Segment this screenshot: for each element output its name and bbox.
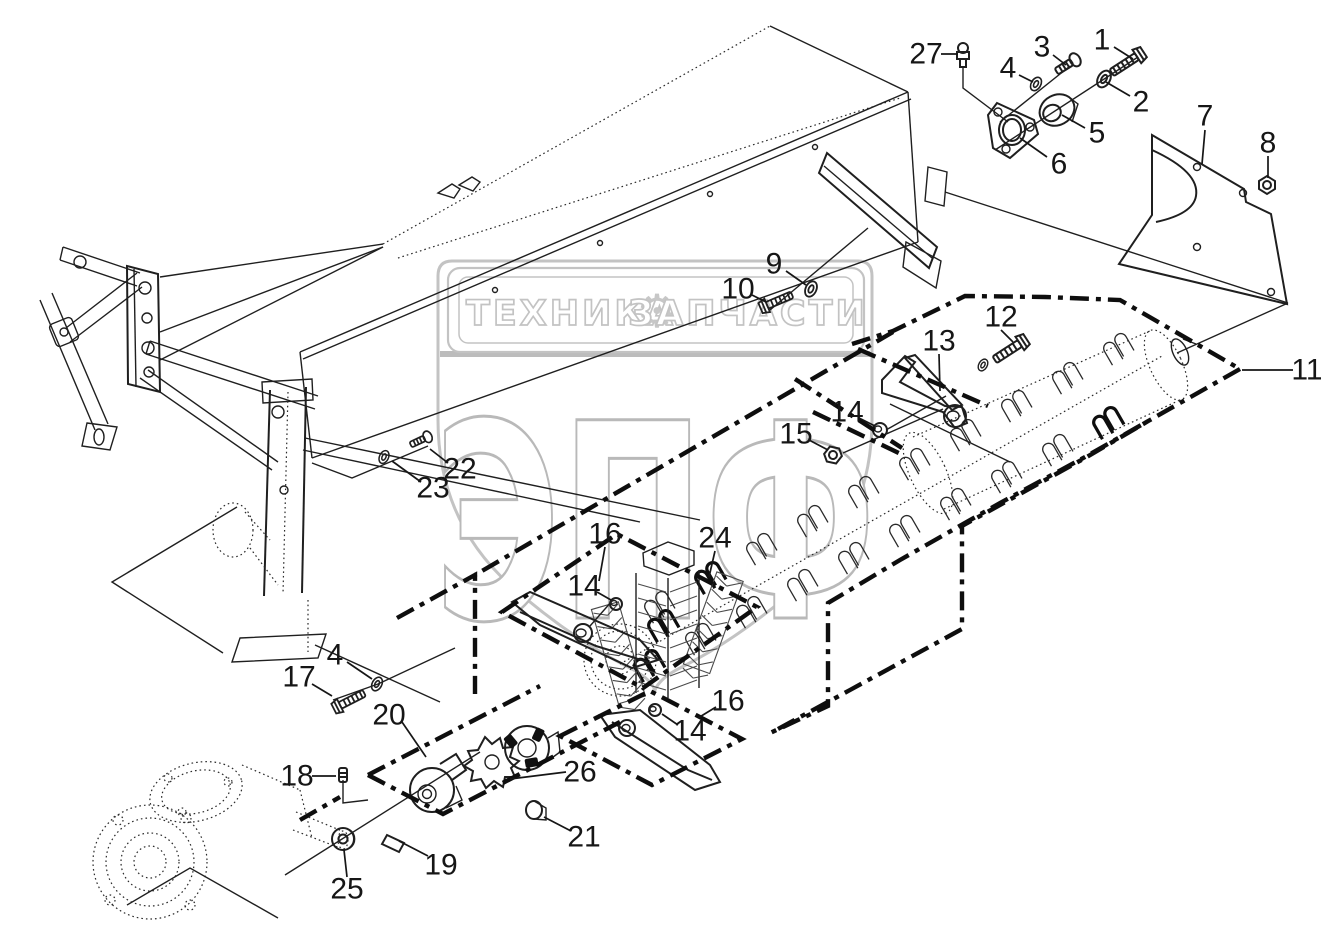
support-leg [213, 379, 326, 662]
tine-clip [1049, 360, 1084, 394]
part-1-label: 1 [1094, 24, 1111, 57]
end-tab [925, 167, 947, 206]
part-5-label: 5 [1089, 117, 1106, 150]
tine-clip [1039, 432, 1074, 466]
tine-clip [1100, 331, 1135, 365]
tine-clip [886, 513, 921, 547]
part-25-label: 25 [330, 873, 363, 906]
exploded-parts-diagram: ТЕХНИКА ⚙ ЗАПЧАСТИ ЭПФ [0, 0, 1321, 928]
top-bracket-left [438, 184, 460, 198]
part-14-top-label: 14 [830, 396, 863, 429]
part-17-label: 17 [282, 661, 315, 694]
part-19-label: 19 [424, 849, 457, 882]
part-27-label: 27 [909, 38, 942, 71]
top-bracket-right [459, 177, 480, 191]
part-21-label: 21 [567, 821, 600, 854]
part-26-label: 26 [563, 756, 596, 789]
set-screw-18 [339, 768, 347, 782]
part-10-label: 10 [721, 273, 754, 306]
part-24-label: 24 [698, 522, 731, 555]
part-7-label: 7 [1197, 100, 1214, 133]
part-6-leader [1020, 138, 1047, 157]
part-4-upper-leader [1019, 75, 1033, 82]
part-11-label: 11 [1291, 354, 1321, 387]
leg-foot [232, 634, 326, 662]
part-3-leader [1053, 55, 1066, 65]
washer-4-upper [1028, 75, 1044, 92]
part-12-label: 12 [984, 301, 1017, 334]
part-7-leader [1202, 130, 1205, 164]
part-16-bottom-label: 16 [711, 685, 744, 718]
pin-14-bottom [649, 704, 661, 716]
bolt-12 [990, 332, 1031, 366]
part-18-label: 18 [280, 760, 313, 793]
screw-22 [408, 430, 434, 450]
part-9-label: 9 [766, 248, 783, 281]
deflector-plate [819, 153, 937, 268]
part-1-leader [1114, 47, 1133, 59]
bolt-1 [1107, 45, 1148, 79]
part-8-label: 8 [1260, 127, 1277, 160]
part-9-leader [786, 271, 806, 285]
part-14-middle-label: 14 [567, 570, 600, 603]
part-16-middle-label: 16 [588, 518, 621, 551]
part-4-lower-label: 4 [327, 639, 344, 672]
drawbar-frame [40, 247, 440, 702]
part-2-leader [1106, 82, 1130, 96]
part-13-leader [939, 354, 940, 391]
tine-clip [896, 446, 931, 480]
screw-3 [1053, 51, 1083, 77]
coupling-flange [410, 768, 454, 812]
part-6-label: 6 [1051, 148, 1068, 181]
coupling-hub [503, 726, 560, 770]
part-3-label: 3 [1034, 31, 1051, 64]
tine-clip [937, 486, 972, 520]
watermark-logo: ТЕХНИКА ⚙ ЗАПЧАСТИ ЭПФ [434, 261, 876, 690]
tine-clip [988, 459, 1023, 493]
part-13-label: 13 [922, 325, 955, 358]
part-23-label: 23 [416, 472, 449, 505]
parts-diagram-page: ТЕХНИКА ⚙ ЗАПЧАСТИ ЭПФ [0, 0, 1321, 928]
nut-8 [1259, 176, 1275, 194]
key-19 [382, 835, 404, 852]
part-2-label: 2 [1133, 86, 1150, 119]
part-20-label: 20 [372, 699, 405, 732]
tine-clip [1090, 405, 1125, 439]
tine-clip [998, 388, 1033, 422]
part-14-bottom-label: 14 [673, 715, 706, 748]
part-15-label: 15 [779, 418, 812, 451]
part-4-upper-label: 4 [1000, 52, 1017, 85]
bolt-17 [331, 687, 368, 715]
spring-washer-12 [976, 357, 990, 372]
